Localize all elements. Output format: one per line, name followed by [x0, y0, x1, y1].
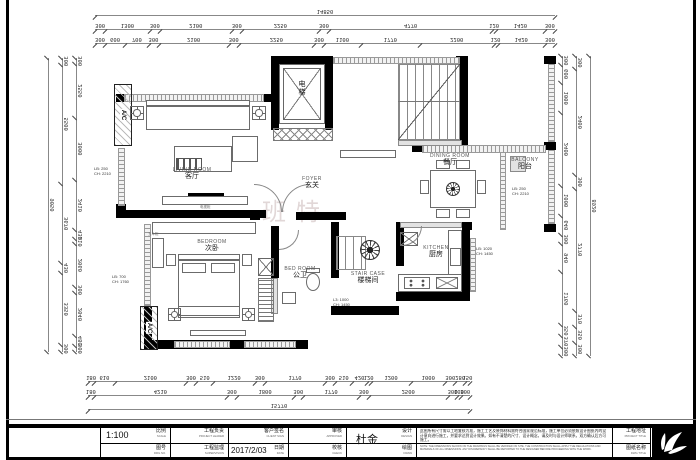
- titleblock-top-rule: [6, 424, 696, 428]
- wall-stairroom-south: [331, 306, 399, 315]
- kitchen-door: [402, 226, 422, 246]
- stair-plant: [360, 240, 380, 260]
- wardrobe: [152, 222, 256, 234]
- date-value: 2017/2/03: [231, 446, 267, 455]
- table-centerpiece: [446, 182, 460, 196]
- dresser-label: 五斗柜: [148, 232, 159, 237]
- room-label-stair: STAIR CASE 楼梯间: [351, 271, 385, 285]
- approved-label: 审核APPROVED: [296, 429, 342, 438]
- room-label-living: LIVING ROOM 客厅: [173, 167, 212, 181]
- room-label-balcony: BALCONY 阳台: [511, 157, 538, 171]
- annotation-kitchen: LB: 1020CH: 1450: [476, 246, 493, 256]
- room-label-kitchen: KITCHEN 厨房: [423, 245, 448, 259]
- dim-right-inner: 3006001000240010006403009401760350370300: [562, 56, 572, 356]
- bath-door: [279, 230, 299, 250]
- window-living-west: [118, 148, 125, 206]
- draw-label: 绘图DRAW: [384, 446, 412, 455]
- pipe-shaft: [258, 278, 274, 322]
- annotation-bath: L3: 1000CH: 1450: [333, 297, 350, 307]
- entry-door-leaf-left: [254, 184, 282, 212]
- window-balcony-east: [548, 150, 555, 224]
- room-label-dining: DINING ROOM 餐厅: [430, 153, 470, 167]
- scale-label: 比例SCALE: [130, 429, 166, 438]
- titleblock-divider: [650, 428, 651, 457]
- dish-rack: [436, 277, 458, 289]
- window-corridor-north: [333, 57, 460, 64]
- dim-left-mid: 300550036704303350300: [62, 58, 72, 352]
- wall-stair-landing: [398, 140, 462, 146]
- nightstand-left: [166, 254, 176, 266]
- dim-left-inner: 30025503000241043021020603002040480300: [76, 58, 86, 352]
- wall-door-jamb: [250, 212, 260, 220]
- project-address-label: 工程地址PROJECT TITLE: [616, 429, 646, 438]
- annotation-balcony: LB: 250CH: 2210: [512, 186, 529, 196]
- wall-kitchen-east: [462, 230, 470, 292]
- window-right-upper: [548, 64, 555, 142]
- sheet-inner-line: [6, 419, 696, 420]
- room-label-foyer: FOYER 玄关: [302, 176, 322, 190]
- sheet-border-right: [693, 0, 696, 460]
- sheet-border-left: [6, 0, 9, 460]
- side-table-light-right: [252, 106, 266, 120]
- dresser: [152, 238, 164, 268]
- pillow-right: [211, 263, 235, 273]
- annotation-left-wall: LB: 250CH: 2210: [94, 166, 111, 176]
- ac-unit-bottom: A/C: [140, 306, 158, 350]
- floor-plan-sheet: 班特 14850 3001300300210030022503004770120…: [0, 0, 700, 460]
- dim-right-mid: 30024003002770370350300: [576, 56, 586, 356]
- dim-top-total: 14850: [95, 6, 555, 16]
- company-logo: [652, 428, 693, 457]
- logo-glyph: [652, 428, 693, 457]
- stove: [404, 277, 430, 289]
- dim-top-row2: 30013003002100300225030047701201420300: [95, 20, 555, 30]
- check-label: 校核CHECK: [296, 446, 342, 455]
- nightstand-right: [242, 254, 252, 266]
- date-label: 日期DATE: [268, 446, 284, 455]
- dim-bottom-row2: 1804210300180030017703002500300100300: [88, 386, 470, 396]
- dining-chair-s1: [436, 209, 450, 218]
- annotation-left-lower: LB: 700CH: 1760: [112, 274, 129, 284]
- client-sign-label: 客户签名CLIENT SIGN: [238, 429, 284, 438]
- dining-chair-w: [420, 180, 429, 194]
- supervision-label: 工程监理SUPERVISION: [180, 446, 224, 455]
- dim-bottom-row1: 1806102100300510122030017703005104201201…: [88, 372, 470, 382]
- wall-entry-right: [296, 212, 346, 220]
- stair-break-line: [398, 64, 460, 140]
- pillow-left: [182, 263, 206, 273]
- dim-top-row3: 3006007003002100300225030011001770220012…: [95, 34, 555, 44]
- dining-chair-e: [477, 180, 486, 194]
- notes-english: NOTE: THE DIMENSIONS SHOWN ON THE DRAWIN…: [420, 445, 608, 457]
- bath-sink: [282, 292, 296, 304]
- bed-runner: [178, 306, 240, 316]
- room-label-bath: BED ROOM 公卫: [284, 266, 315, 280]
- designer-value: 杜金: [356, 431, 378, 447]
- wall-mid-horizontal: [116, 210, 266, 218]
- window-bedroom-south2: [244, 341, 296, 348]
- dwg-title-label: 图纸名称DWG TITLE: [616, 446, 646, 455]
- tv-cabinet: [162, 196, 248, 205]
- wall-kitchen-south: [396, 292, 470, 301]
- wall-post-right-top: [544, 56, 556, 64]
- downlight-right: [242, 308, 255, 321]
- room-label-elevator: 电梯: [296, 80, 306, 96]
- notes-chinese: 此图所有尺寸需以工地复核为准，施工工艺及装饰材料需符合国家规范标准，施工单位必须…: [420, 429, 608, 443]
- foyer-console: [340, 150, 396, 158]
- wall-stair-east: [460, 64, 468, 148]
- wall-elevator-top: [271, 56, 333, 64]
- elevator-door-rail: [273, 128, 333, 141]
- tv-set: [188, 193, 224, 196]
- armchair: [232, 136, 258, 162]
- window-dining-north: [422, 145, 546, 153]
- wall-elevator-right: [325, 56, 333, 130]
- duct-shaft: [258, 258, 274, 276]
- dim-right-outer: 8920: [590, 56, 600, 356]
- room-label-bedroom: BEDROOM 次卧: [197, 239, 226, 253]
- tv-cabinet-label: 电视柜: [200, 205, 211, 210]
- side-table-light-left: [130, 106, 144, 120]
- wall-post-right-bottom: [544, 224, 556, 232]
- wall-dining-balcony: [500, 152, 506, 230]
- bed-bench: [190, 330, 246, 336]
- project-leader-label: 工程负责PROJECT LEADER: [180, 429, 224, 438]
- dining-chair-s2: [456, 209, 470, 218]
- scale-value: 1:100: [106, 430, 129, 440]
- wall-post-kitchen-ne: [462, 222, 472, 230]
- downlight-left: [168, 308, 181, 321]
- dim-bottom-total: 15770: [88, 400, 470, 410]
- sofa: [146, 106, 250, 130]
- dim-left-outer: 9050: [48, 58, 58, 352]
- window-bedroom-south1: [174, 341, 230, 348]
- design-label: 设计DESIGN: [384, 429, 412, 438]
- drg-no-label: 图号DRG NO.: [130, 446, 166, 455]
- kitchen-sink: [450, 248, 461, 266]
- wall-elevator-left: [271, 56, 279, 130]
